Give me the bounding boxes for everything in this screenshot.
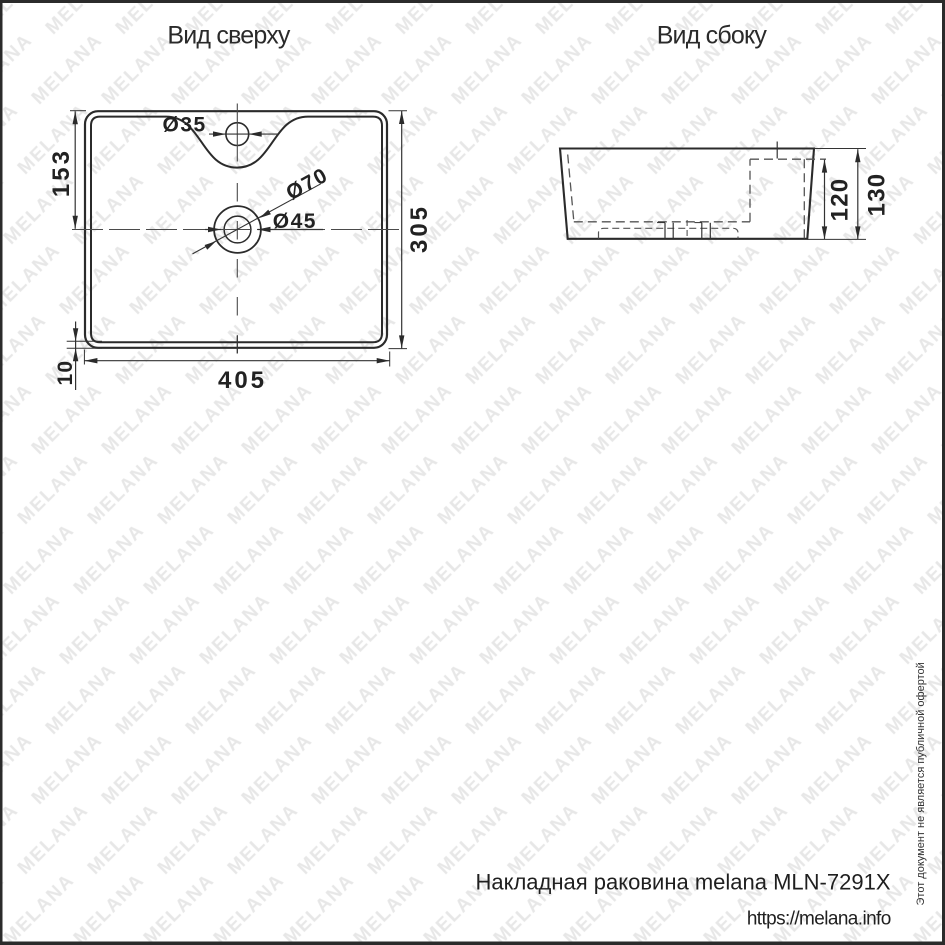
- svg-text:Вид сбоку: Вид сбоку: [657, 22, 768, 50]
- svg-text:Вид сверху: Вид сверху: [167, 22, 291, 50]
- svg-text:405: 405: [218, 367, 267, 394]
- svg-text:Ø35: Ø35: [163, 114, 207, 137]
- svg-text:https://melana.info: https://melana.info: [747, 909, 891, 930]
- svg-text:153: 153: [48, 148, 75, 197]
- svg-text:Этот документ не является публ: Этот документ не является публичной офер…: [915, 662, 927, 905]
- svg-text:Ø45: Ø45: [273, 210, 317, 233]
- svg-text:Накладная раковина melana MLN-: Накладная раковина melana MLN-7291X: [475, 870, 890, 895]
- svg-text:305: 305: [406, 204, 433, 253]
- svg-text:10: 10: [54, 360, 77, 386]
- svg-text:120: 120: [827, 178, 854, 222]
- svg-text:130: 130: [864, 173, 891, 217]
